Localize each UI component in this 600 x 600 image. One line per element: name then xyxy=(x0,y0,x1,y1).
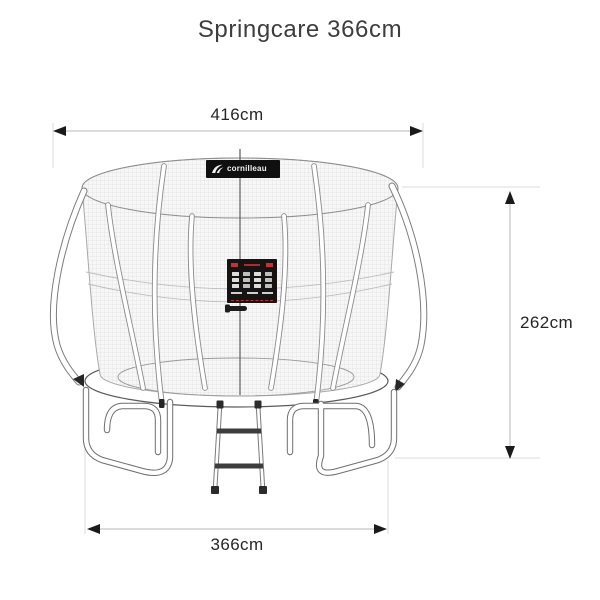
brand-logo-text: cornilleau xyxy=(227,165,267,173)
brand-swoosh-icon xyxy=(211,164,224,175)
arrowhead-left-icon xyxy=(87,524,100,534)
sticker-pictogram-grid xyxy=(231,271,273,289)
ladder xyxy=(211,401,267,495)
brand-banner: cornilleau xyxy=(206,160,280,178)
arrowhead-down-icon xyxy=(505,446,515,459)
sticker-warning-strip xyxy=(231,262,273,267)
trampoline-illustration xyxy=(0,0,600,600)
arrowhead-up-icon xyxy=(505,191,515,204)
dimension-arrow-base-width xyxy=(87,524,387,534)
dimension-label-top-width: 416cm xyxy=(167,105,307,125)
dimension-arrow-height xyxy=(505,191,515,459)
sticker-dashed-rule xyxy=(231,298,273,301)
sticker-text-row xyxy=(231,292,273,294)
arrowhead-left-icon xyxy=(53,126,66,136)
dimension-arrow-top-width xyxy=(53,126,423,136)
arrowhead-right-icon xyxy=(410,126,423,136)
product-diagram: Springcare 366cm xyxy=(0,0,600,600)
dimension-label-base-width: 366cm xyxy=(167,535,307,555)
dimension-label-height: 262cm xyxy=(520,313,573,333)
arrowhead-right-icon xyxy=(374,524,387,534)
safety-sticker xyxy=(227,259,277,303)
